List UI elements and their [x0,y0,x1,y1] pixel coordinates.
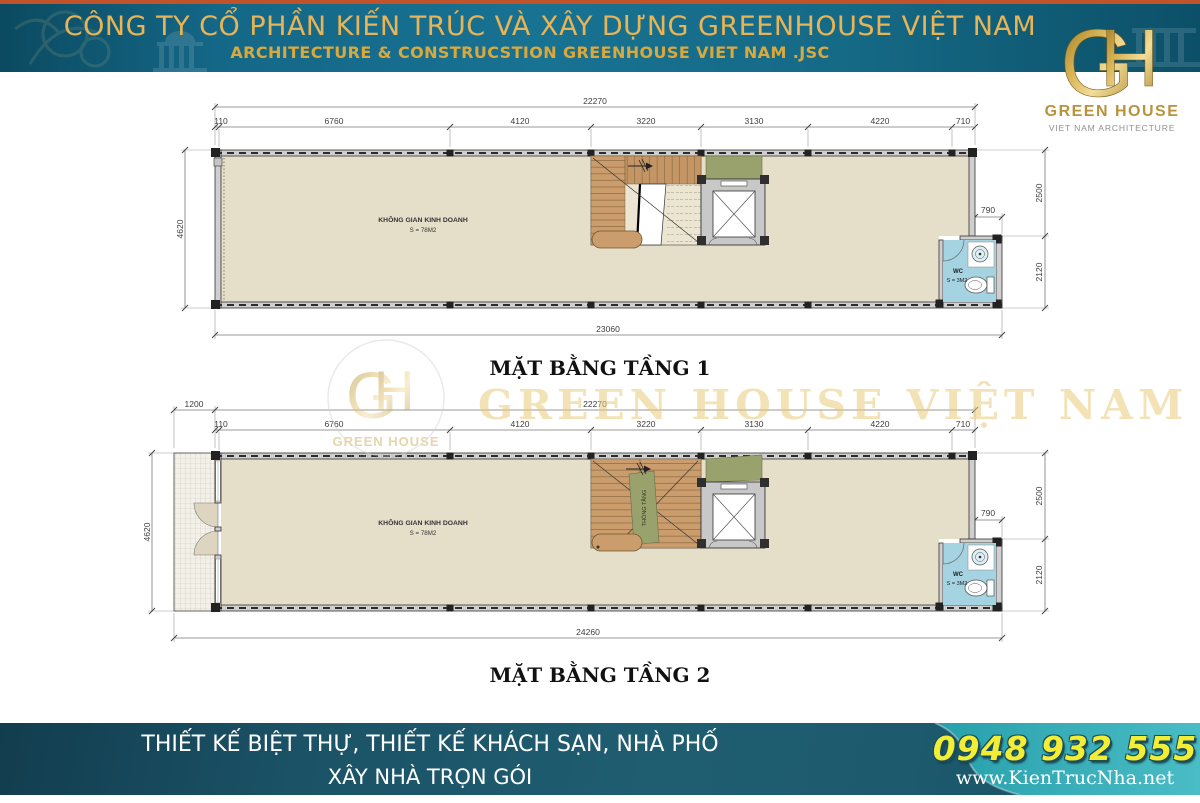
dim-right-2120: 2120 [1034,565,1044,584]
dim-overall-top: 22270 [583,399,607,409]
wc-toilet-icon [965,277,994,293]
dim-seg-4120: 4120 [511,116,530,126]
room-area-label: S = 78M2 [410,227,437,234]
logo-name: GREEN HOUSE [1045,103,1180,120]
plan1-title: MẶT BẰNG TẦNG 1 [140,356,1060,380]
company-subtitle: ARCHITECTURE & CONSTRUCSTION GREENHOUSE … [20,43,1040,62]
dim-wc-790: 790 [981,205,995,215]
dim-seg-110: 110 [214,116,228,126]
plan1-wc: WC S = 3M2 [943,240,996,302]
footer-service-line-2: XÂY NHÀ TRỌN GÓI [60,765,800,789]
footer-service-line-1: THIẾT KẾ BIỆT THỰ, THIẾT KẾ KHÁCH SẠN, N… [60,732,800,757]
void-label: THÔNG TẦNG [641,490,648,527]
dim-seg-4220: 4220 [871,116,890,126]
plan2-elevator [697,455,769,548]
dim-left-4620: 4620 [175,219,185,238]
sheet: CÔNG TY CỔ PHẦN KIẾN TRÚC VÀ XÂY DỰNG GR… [0,0,1200,803]
brand-logo: G H GREEN HOUSE VIET NAM ARCHITECTURE [1042,4,1182,140]
dim-wc-790: 790 [981,508,995,518]
dim-seg-3130: 3130 [745,116,764,126]
dim-seg-4120: 4120 [511,419,530,429]
dim-seg-710: 710 [956,116,970,126]
header-banner: CÔNG TY CỔ PHẦN KIẾN TRÚC VÀ XÂY DỰNG GR… [0,0,1200,72]
plan2-wc: WC S = 3M2 [943,543,996,605]
wc-sink-icon [968,242,994,267]
dim-seg-110: 110 [214,419,228,429]
footer-phone-number: 0948 932 555 [930,729,1200,768]
dim-seg-6760: 6760 [325,419,344,429]
floor-plan-1-drawing: 22270 110 6760 4120 3220 3130 4220 710 4… [140,95,1060,345]
dim-balcony-1200: 1200 [185,399,204,409]
dim-seg-3220: 3220 [637,116,656,126]
dim-overall-bottom: 24260 [576,627,600,637]
plan2-title: MẶT BẰNG TẦNG 2 [140,663,1060,687]
footer-banner: THIẾT KẾ BIỆT THỰ, THIẾT KẾ KHÁCH SẠN, N… [0,723,1200,795]
plan1-staircase [591,156,701,248]
dim-seg-710: 710 [956,419,970,429]
dim-seg-3220: 3220 [637,419,656,429]
wc-toilet-icon [965,580,994,596]
floor-plan-2-drawing: 1200 22270 110 6760 4120 3220 3130 4220 … [140,398,1060,648]
header-accent-strip [0,0,1200,4]
wc-label: WC [953,572,964,578]
logo-tagline: VIET NAM ARCHITECTURE [1049,123,1175,133]
plan2-staircase: THÔNG TẦNG [591,459,701,551]
gh-monogram-icon: G H [1060,10,1159,117]
dim-left-4620: 4620 [142,522,152,541]
dim-right-2500: 2500 [1034,183,1044,202]
plan2-balcony [174,453,218,611]
wc-area-label: S = 3M2 [947,581,968,587]
dim-seg-4220: 4220 [871,419,890,429]
logo-letter-h: H [1100,13,1159,104]
plan1-elevator [697,156,769,245]
room-area-label: S = 78M2 [410,530,437,537]
dim-seg-3130: 3130 [745,419,764,429]
wc-label: WC [953,269,964,275]
wc-area-label: S = 3M2 [947,278,968,284]
dim-right-2120: 2120 [1034,262,1044,281]
room-label: KHÔNG GIAN KINH DOANH [378,215,468,224]
wc-sink-icon [968,545,994,570]
footer-website-link[interactable]: www.KienTrucNha.net [930,767,1200,789]
dim-right-2500: 2500 [1034,486,1044,505]
dim-seg-6760: 6760 [325,116,344,126]
dim-overall-top: 22270 [583,96,607,106]
dim-overall-bottom: 23060 [596,324,620,334]
room-label: KHÔNG GIAN KINH DOANH [378,518,468,527]
company-title: CÔNG TY CỔ PHẦN KIẾN TRÚC VÀ XÂY DỰNG GR… [20,11,1080,42]
